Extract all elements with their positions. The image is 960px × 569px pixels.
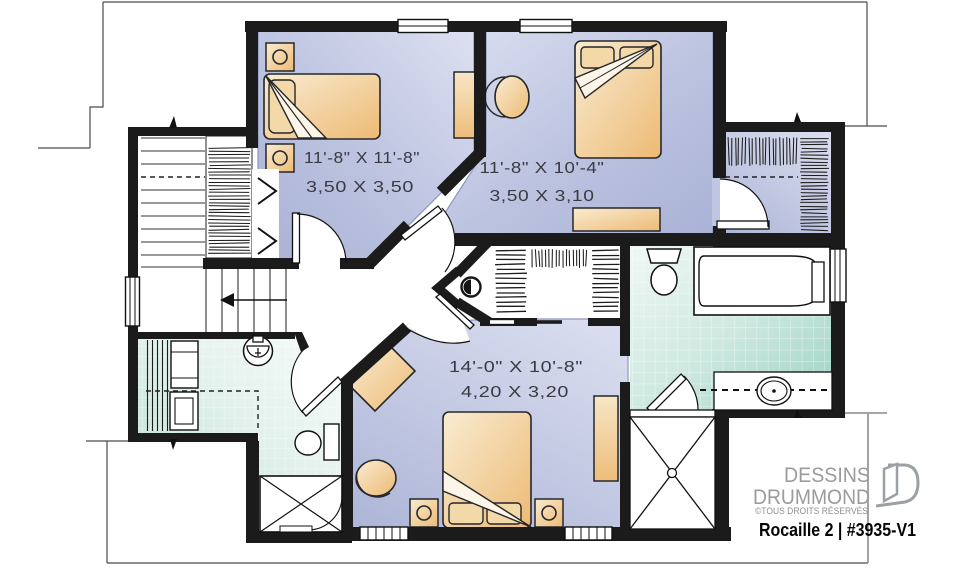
svg-text:14'-0" X 10'-8": 14'-0" X 10'-8" <box>449 359 583 376</box>
svg-text:Rocaille 2 | #3935-V1: Rocaille 2 | #3935-V1 <box>759 520 916 540</box>
svg-text:11'-8" X 11'-8": 11'-8" X 11'-8" <box>304 150 420 167</box>
svg-text:3,50 X 3,50: 3,50 X 3,50 <box>306 179 414 196</box>
svg-text:11'-8" X 10'-4": 11'-8" X 10'-4" <box>480 160 605 177</box>
svg-text:DESSINS: DESSINS <box>784 464 870 487</box>
svg-text:3,50 X 3,10: 3,50 X 3,10 <box>490 188 595 205</box>
svg-text:©TOUS DROITS RÉSERVÉS: ©TOUS DROITS RÉSERVÉS <box>755 506 868 516</box>
svg-text:4,20 X 3,20: 4,20 X 3,20 <box>461 384 569 401</box>
